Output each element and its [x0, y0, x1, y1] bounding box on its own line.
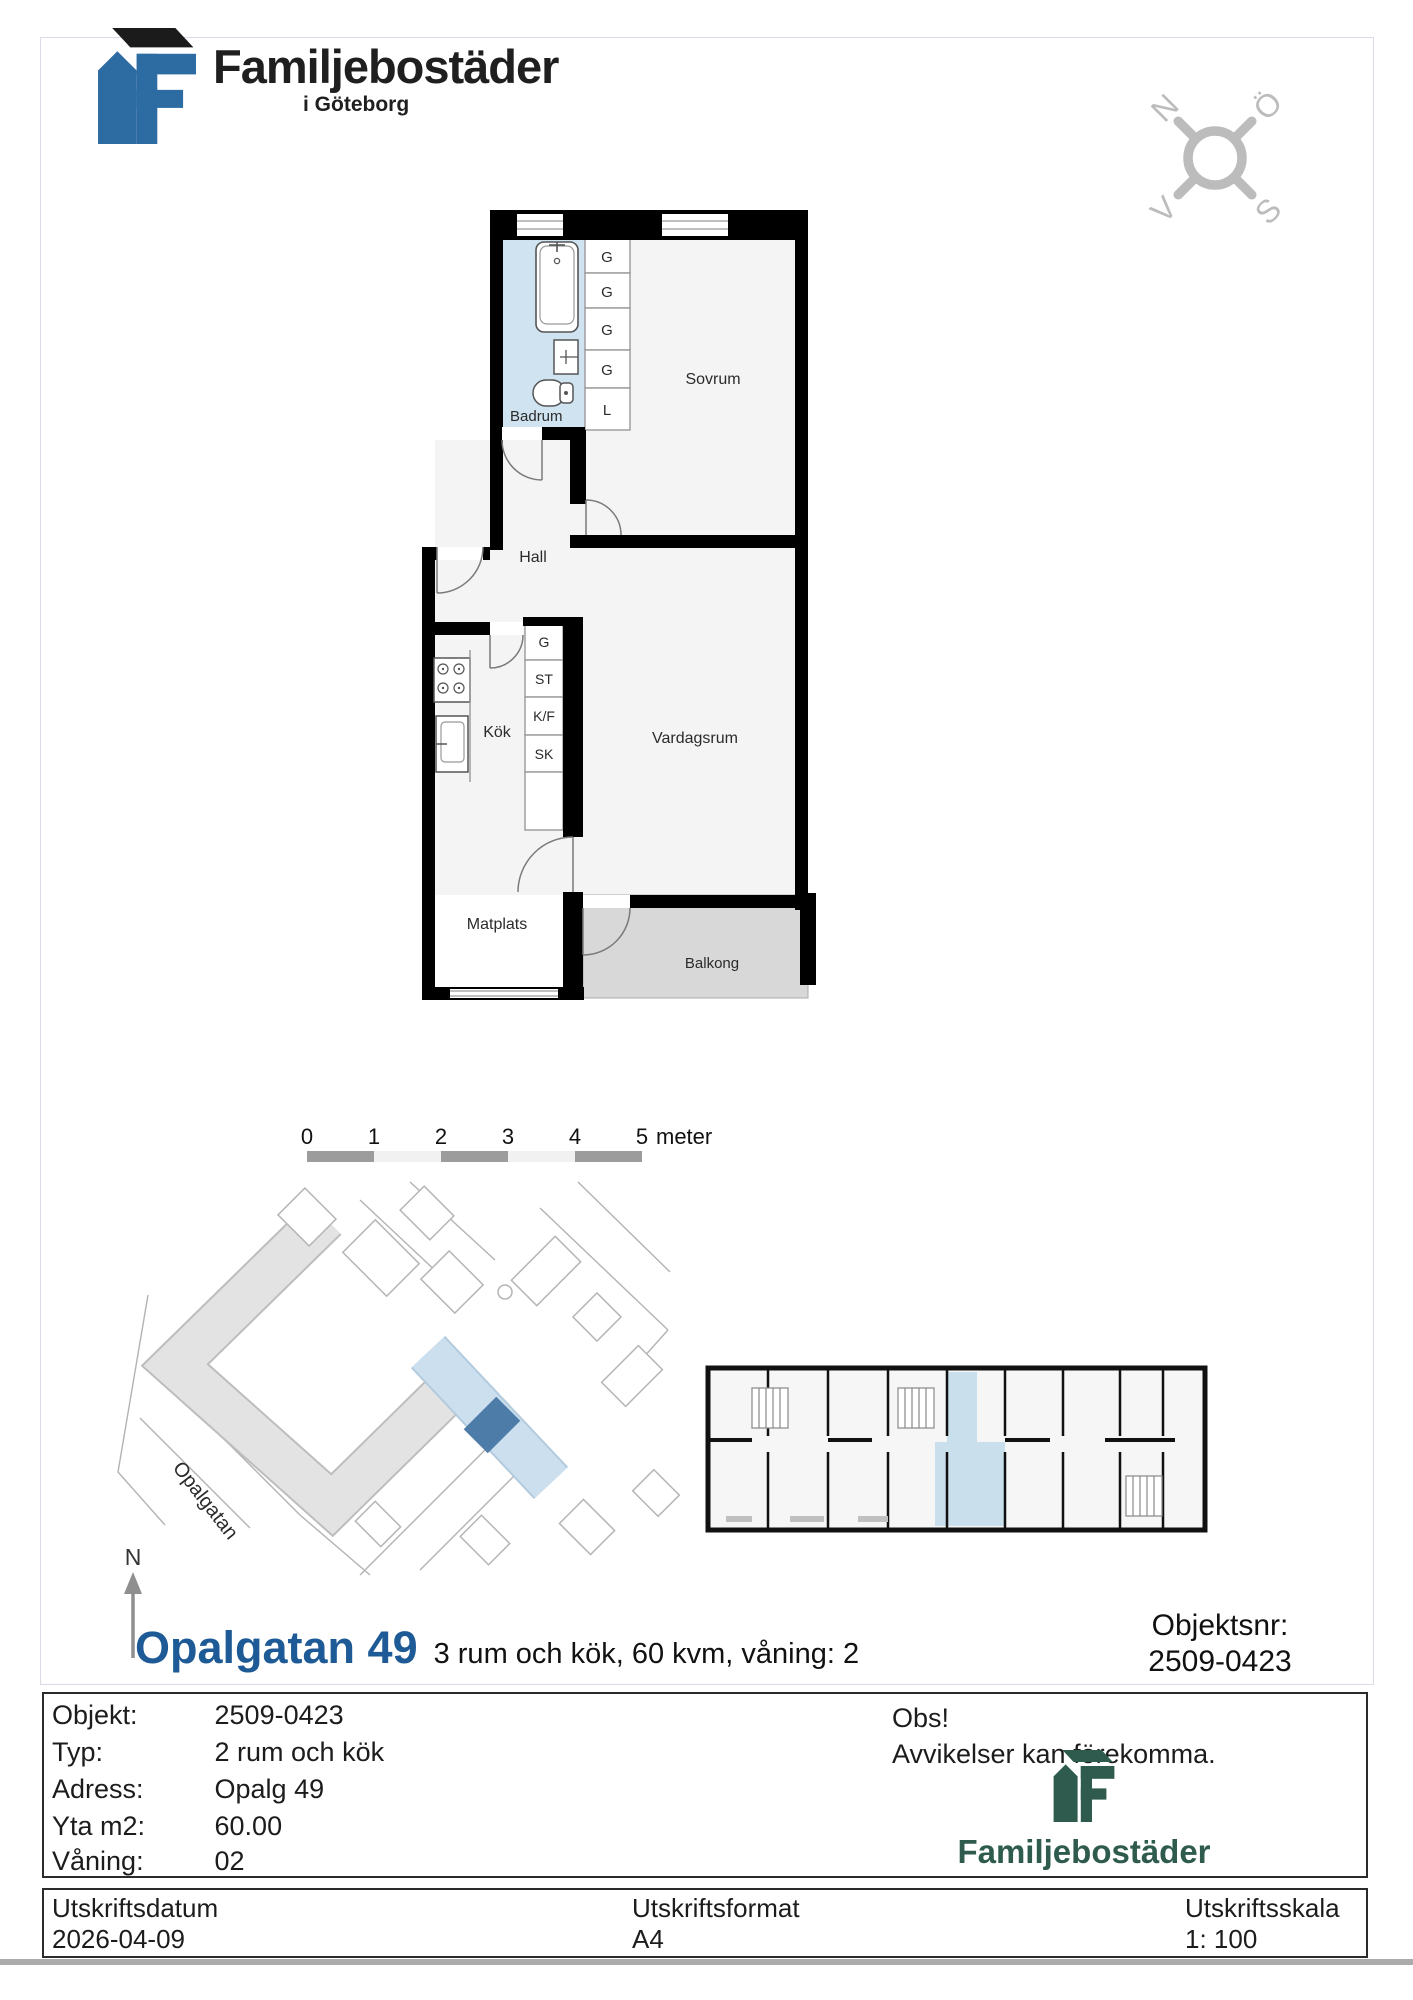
info-row-objekt: Objekt: 2509-0423: [52, 1700, 344, 1737]
print-footer: Utskriftsdatum 2026-04-09 Utskriftsforma…: [42, 1888, 1368, 1958]
closet-sk: SK: [535, 746, 554, 762]
page-title: Opalgatan 49: [135, 1622, 418, 1674]
north-arrow-head: [124, 1572, 142, 1594]
site-plan: Opalgatan: [110, 1180, 690, 1580]
print-format-label: Utskriftsformat: [632, 1893, 800, 1924]
info-label: Objekt:: [52, 1700, 207, 1731]
objektsnr-block: Objektsnr: 2509-0423: [1080, 1608, 1360, 1680]
info-box: Objekt: 2509-0423 Typ: 2 rum och kök Adr…: [42, 1692, 1368, 1878]
apartment-floorplan: Badrum Sovrum Hall Kök Vardagsrum Matpla…: [415, 200, 820, 1012]
scale-tick-4: 4: [569, 1124, 581, 1150]
sovrum-fill: [630, 238, 795, 538]
label-balkong: Balkong: [685, 955, 739, 972]
closet-g5: G: [539, 634, 550, 650]
closet-st: ST: [535, 671, 553, 687]
apartment-highlight-lower: [935, 1442, 1005, 1526]
title-row: Opalgatan 49 3 rum och kök, 60 kvm, våni…: [135, 1622, 859, 1674]
compass-rose: N Ö S V: [1135, 78, 1295, 238]
info-row-adress: Adress: Opalg 49: [52, 1774, 324, 1811]
scale-tick-5: 5: [636, 1124, 648, 1150]
brand-name: Familjebostäder: [213, 42, 558, 91]
objektsnr-value: 2509-0423: [1080, 1644, 1360, 1680]
apartment-highlight-upper: [947, 1372, 977, 1444]
toilet: [533, 380, 573, 406]
floorplan-document-page: Familjebostäder i Göteborg N Ö S V: [0, 0, 1413, 2000]
scale-segment: [575, 1151, 642, 1162]
scale-segment: [441, 1151, 508, 1162]
print-scale-label: Utskriftsskala: [1185, 1893, 1340, 1924]
brand-text: Familjebostäder i Göteborg: [213, 28, 558, 117]
info-value: Opalg 49: [215, 1774, 325, 1804]
bathroom-sink: [554, 340, 578, 374]
info-label: Typ:: [52, 1737, 207, 1768]
stove: [434, 658, 470, 702]
footer-brand-name: Familjebostäder: [934, 1833, 1234, 1871]
obs-title: Obs!: [892, 1700, 1216, 1736]
label-matplats: Matplats: [467, 916, 527, 933]
info-row-yta: Yta m2: 60.00: [52, 1811, 282, 1848]
building-overview-plan: [695, 1340, 1210, 1540]
scale-segment: [307, 1151, 374, 1162]
objektsnr-label: Objektsnr:: [1080, 1608, 1360, 1644]
info-value: 60.00: [215, 1811, 283, 1841]
logo-roof: [112, 28, 193, 47]
scale-unit: meter: [656, 1124, 712, 1150]
page-subtitle: 3 rum och kök, 60 kvm, våning: 2: [434, 1638, 860, 1671]
scale-tick-3: 3: [502, 1124, 514, 1150]
bathtub: [536, 242, 578, 332]
brand-subtitle: i Göteborg: [303, 93, 558, 117]
scale-tick-1: 1: [368, 1124, 380, 1150]
print-scale-value: 1: 100: [1185, 1924, 1340, 1955]
kitchen-sink: [436, 716, 468, 772]
label-sovrum: Sovrum: [685, 371, 740, 388]
info-value: 2 rum och kök: [215, 1737, 385, 1767]
info-value: 2509-0423: [215, 1700, 344, 1730]
page-bottom-edge: [0, 1959, 1413, 1965]
info-row-typ: Typ: 2 rum och kök: [52, 1737, 384, 1774]
closet-g3: G: [601, 322, 613, 339]
scale-bar: 0 1 2 3 4 5 meter: [290, 1124, 720, 1170]
street-name-label: Opalgatan: [168, 1458, 242, 1544]
fixtures: [726, 1516, 888, 1522]
label-badrum: Badrum: [510, 408, 563, 425]
print-scale: Utskriftsskala 1: 100: [1185, 1893, 1340, 1955]
scale-segment: [374, 1151, 441, 1162]
scale-tick-0: 0: [301, 1124, 313, 1150]
print-date: Utskriftsdatum 2026-04-09: [52, 1893, 218, 1955]
north-label: N: [125, 1544, 142, 1570]
info-label: Våning:: [52, 1846, 207, 1877]
print-format-value: A4: [632, 1924, 800, 1955]
info-label: Yta m2:: [52, 1811, 207, 1842]
brand-header: Familjebostäder i Göteborg: [95, 28, 558, 144]
logo-house-f: [98, 51, 196, 144]
info-row-vaning: Våning: 02: [52, 1846, 245, 1883]
closet-column-lower: [525, 622, 563, 830]
closet-g1: G: [601, 249, 613, 266]
scale-tick-2: 2: [435, 1124, 447, 1150]
print-format: Utskriftsformat A4: [632, 1893, 800, 1955]
closet-kf: K/F: [533, 708, 555, 724]
print-date-value: 2026-04-09: [52, 1924, 218, 1955]
familjebostader-logo-icon-green: [1051, 1750, 1117, 1822]
balkong-fill: [583, 895, 808, 998]
label-vardagsrum: Vardagsrum: [652, 730, 738, 747]
closet-l: L: [603, 402, 611, 419]
closet-g4: G: [601, 362, 613, 379]
closet-g2: G: [601, 284, 613, 301]
footer-brand-logo: Familjebostäder: [934, 1750, 1234, 1871]
label-hall: Hall: [519, 549, 547, 566]
scale-segment: [508, 1151, 575, 1162]
info-value: 02: [215, 1846, 245, 1876]
label-kok: Kök: [483, 724, 512, 741]
familjebostader-logo-icon: [95, 28, 199, 144]
print-date-label: Utskriftsdatum: [52, 1893, 218, 1924]
info-label: Adress:: [52, 1774, 207, 1805]
